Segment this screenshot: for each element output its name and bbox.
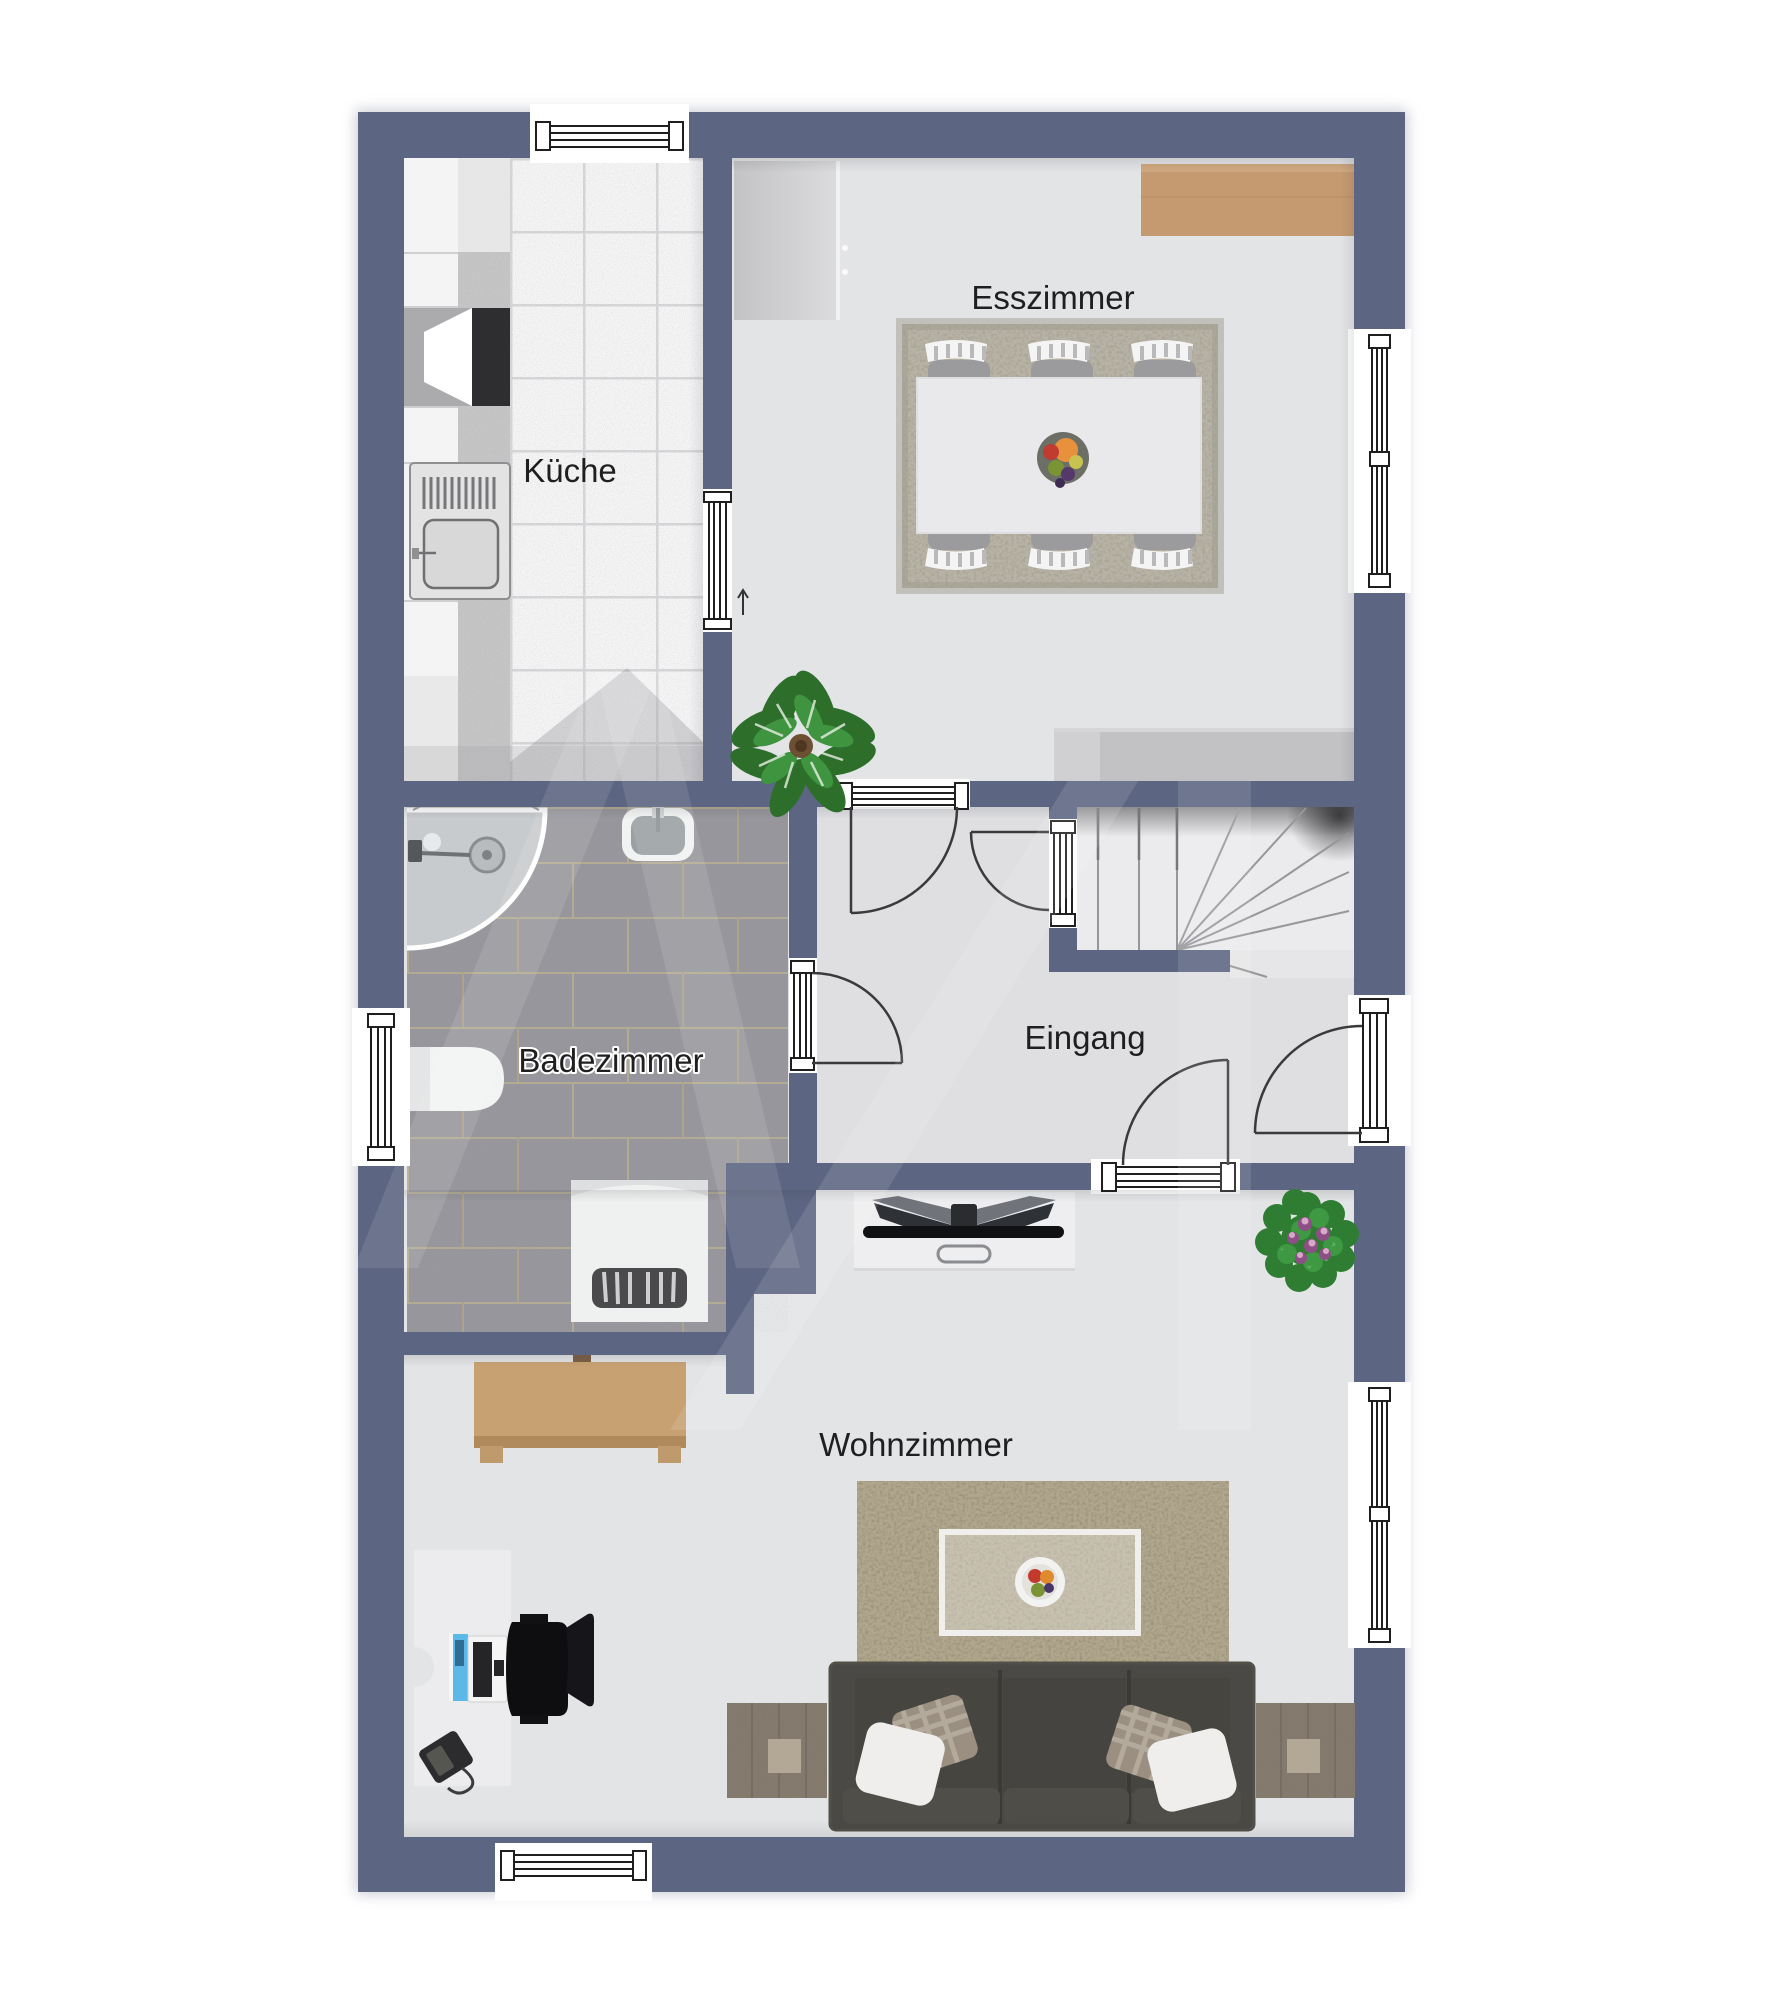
svg-text:Badezimmer: Badezimmer xyxy=(518,1042,703,1079)
svg-text:Esszimmer: Esszimmer xyxy=(971,279,1134,316)
svg-text:Eingang: Eingang xyxy=(1024,1019,1145,1056)
svg-text:Küche: Küche xyxy=(523,452,617,489)
svg-text:Wohnzimmer: Wohnzimmer xyxy=(819,1426,1013,1463)
